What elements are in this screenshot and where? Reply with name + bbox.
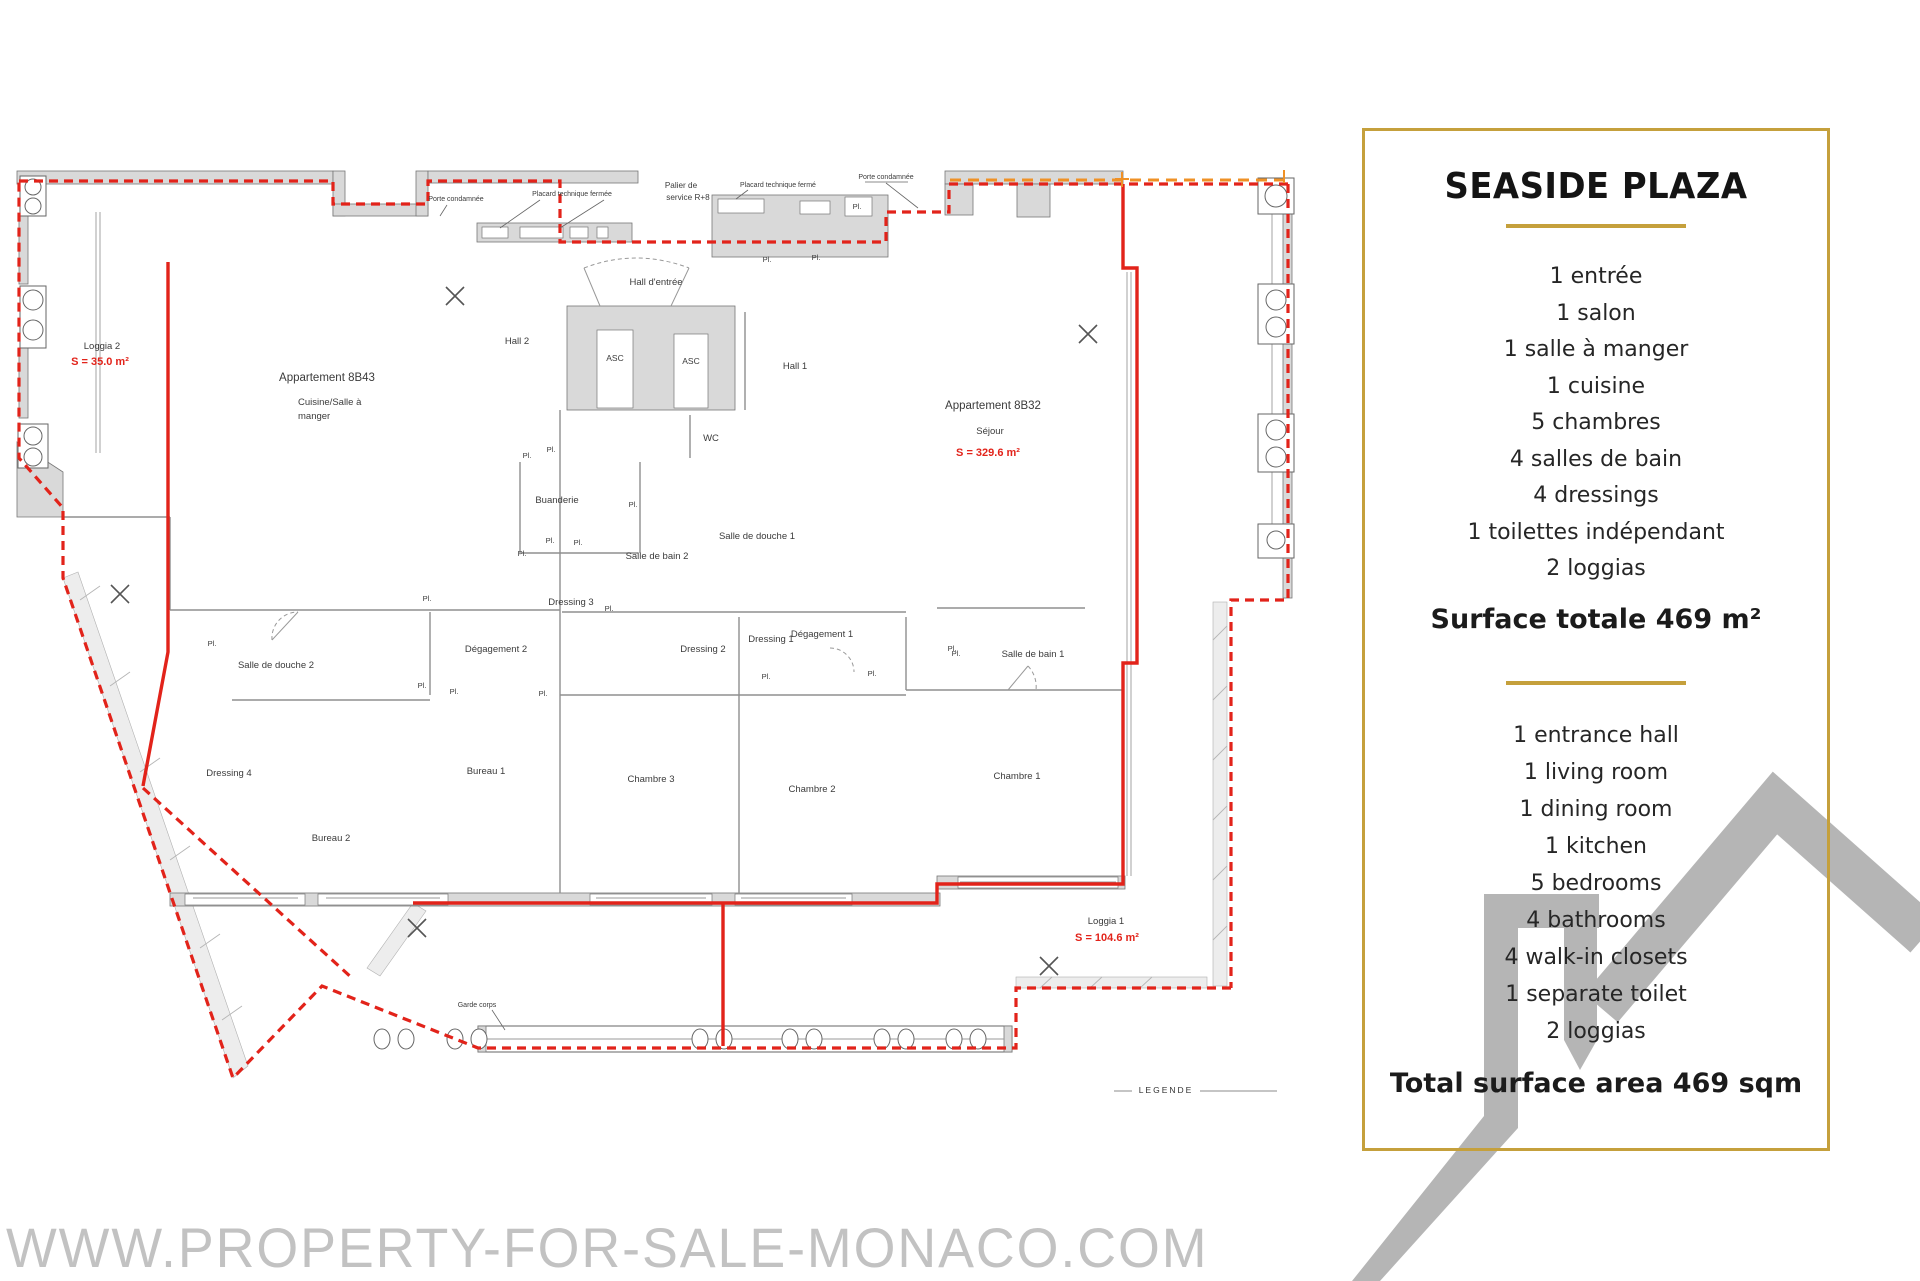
label-wc: WC [703,433,719,444]
label-asc-2: ASC [682,356,699,366]
label-buanderie: Buanderie [535,495,578,506]
label-placard: Pl. [450,687,459,696]
label-placard: Pl. [546,536,555,545]
surface-total-fr: Surface totale 469 m² [1366,604,1826,635]
label-placard-technique-1: Placard technique fermée [532,191,612,198]
label-placard: Pl. [518,549,527,558]
panel-title: SEASIDE PLAZA [1380,166,1812,207]
panel-list-item: 1 salle à manger [1366,332,1826,369]
label-placard: Pl. [762,672,771,681]
panel-list-item: 4 dressings [1366,478,1826,515]
label-legende: LEGENDE [1139,1085,1194,1095]
label-loggia-2-area: S = 35.0 m² [71,356,129,368]
label-bureau-2: Bureau 2 [312,833,351,844]
label-degagement-1: Dégagement 1 [791,629,853,640]
label-placard: Pl. [523,451,532,460]
label-placard: Pl. [812,253,821,262]
panel-list-item: 2 loggias [1366,551,1826,588]
label-placard: Pl. [574,538,583,547]
panel-list-item: 2 loggias [1366,1013,1826,1050]
hatch-bands [63,572,1227,1078]
label-placard-technique-2: Placard technique fermé [740,182,816,189]
label-salle-de-douche-1: Salle de douche 1 [719,531,795,542]
panel-list-item: 1 living room [1366,754,1826,791]
label-loggia-1: Loggia 1 [1088,916,1124,927]
label-placard: Pl. [539,689,548,698]
panel-list-item: 1 salon [1366,296,1826,333]
label-8b32-area: S = 329.6 m² [956,447,1020,459]
label-placard: Pl. [605,604,614,613]
label-garde-corps: Garde corps [458,1002,497,1009]
english-room-list: 1 entrance hall1 living room1 dining roo… [1366,717,1826,1050]
label-cuisine-line1: Cuisine/Salle à [298,397,362,408]
label-placard: Pl. [868,669,877,678]
label-dressing-3: Dressing 3 [548,597,593,608]
gold-divider-middle [1506,681,1686,685]
label-placard: Pl. [547,445,556,454]
label-dressing-4: Dressing 4 [206,768,251,779]
label-chambre-3: Chambre 3 [628,774,675,785]
label-placard: Pl. [423,594,432,603]
label-cuisine-line2: manger [298,411,330,422]
label-placard: Pl. [763,255,772,264]
panel-list-item: 1 toilettes indépendant [1366,515,1826,552]
label-placard: Pl. [208,639,217,648]
label-palier-line1: Palier de [665,181,698,190]
panel-list-item: 1 separate toilet [1366,976,1826,1013]
label-placard: Pl. [948,644,957,653]
label-porte-condamnee-2: Porte condamnée [858,174,913,181]
panel-list-item: 1 entrée [1366,259,1826,296]
label-placard: Pl. [629,500,638,509]
label-placard: Pl. [853,202,862,211]
label-sejour: Séjour [976,426,1003,437]
gold-divider-top [1506,224,1686,228]
label-dressing-1: Dressing 1 [748,634,793,645]
french-room-list: 1 entrée1 salon1 salle à manger1 cuisine… [1366,259,1826,588]
panel-list-item: 4 salles de bain [1366,442,1826,479]
label-apartment-8b43: Appartement 8B43 [279,372,375,384]
label-dressing-2: Dressing 2 [680,644,725,655]
panel-list-item: 4 bathrooms [1366,902,1826,939]
label-salle-de-bain-2: Salle de bain 2 [626,551,689,562]
label-salle-de-bain-1: Salle de bain 1 [1002,649,1065,660]
label-salle-de-douche-2: Salle de douche 2 [238,660,314,671]
panel-list-item: 1 cuisine [1366,369,1826,406]
panel-list-item: 1 dining room [1366,791,1826,828]
label-hall-1: Hall 1 [783,361,807,372]
website-watermark: WWW.PROPERTY-FOR-SALE-MONACO.COM [6,1215,1208,1280]
label-loggia-2: Loggia 2 [84,341,120,352]
panel-list-item: 1 kitchen [1366,828,1826,865]
label-hall-entree: Hall d'entrée [629,277,682,288]
surface-total-en: Total surface area 469 sqm [1366,1068,1826,1099]
label-loggia-1-area: S = 104.6 m² [1075,932,1139,944]
panel-list-item: 5 chambres [1366,405,1826,442]
label-porte-condamnee-1: Porte condamnée [428,196,483,203]
panel-list-item: 5 bedrooms [1366,865,1826,902]
label-chambre-2: Chambre 2 [789,784,836,795]
label-chambre-1: Chambre 1 [994,771,1041,782]
label-asc-1: ASC [606,353,623,363]
panel-list-item: 4 walk-in closets [1366,939,1826,976]
panel-list-item: 1 entrance hall [1366,717,1826,754]
page: Porte condamnéePlacard technique ferméeP… [0,0,1920,1281]
label-bureau-1: Bureau 1 [467,766,506,777]
label-apartment-8b32: Appartement 8B32 [945,400,1041,412]
label-palier-line2: service R+8 [666,193,710,202]
label-degagement-2: Dégagement 2 [465,644,527,655]
label-hall-2: Hall 2 [505,336,529,347]
leader-lines [440,182,1277,1091]
label-placard: Pl. [418,681,427,690]
